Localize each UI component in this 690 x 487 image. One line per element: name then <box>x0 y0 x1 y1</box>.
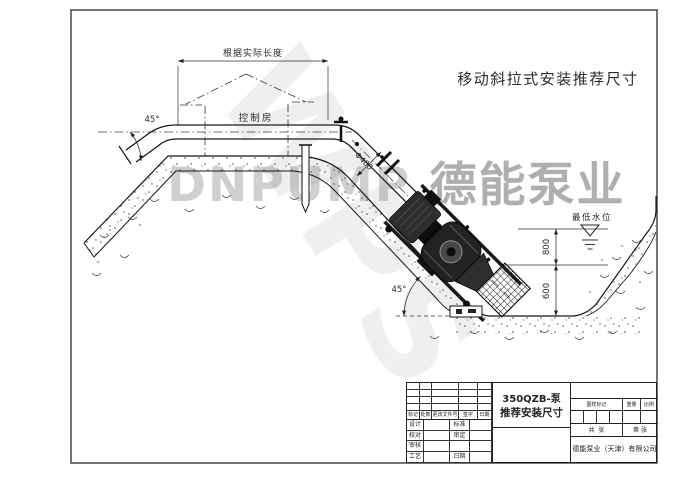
revision-cell <box>478 397 492 404</box>
title-block-right: 图样标记 重量 比例 共 张 第 张 德能泵业（天津）有限公司 <box>571 383 658 462</box>
revision-cell <box>432 390 459 397</box>
info-cell <box>597 411 610 423</box>
slope-angle-dimension: 45° <box>391 276 420 316</box>
signature-cell <box>424 431 450 442</box>
revision-empty-rows <box>407 383 492 411</box>
revision-cell <box>459 383 478 390</box>
info-cell <box>641 411 657 423</box>
revision-cell <box>459 390 478 397</box>
info-cell <box>584 411 597 423</box>
info-header-row: 图样标记 重量 比例 <box>571 399 658 411</box>
revision-cell <box>432 383 459 390</box>
slope-angle-label: 45° <box>391 285 406 295</box>
water-level-icon <box>581 225 599 249</box>
revision-col-header: 日期 <box>478 411 492 419</box>
dim-600-label: 600 <box>542 283 552 299</box>
signature-label: 工艺 <box>407 452 424 463</box>
ground-hatching <box>84 156 656 334</box>
info-empty-row <box>571 383 658 399</box>
revision-cell <box>420 383 432 390</box>
revision-cell <box>478 404 492 411</box>
revision-cell <box>478 383 492 390</box>
base-block <box>450 306 482 317</box>
revision-cell <box>407 397 420 404</box>
signature-label: 标准 <box>450 420 470 431</box>
signature-cell <box>470 441 492 452</box>
depth-dimensions: 800 600 <box>505 229 608 316</box>
signature-cell <box>470 452 492 463</box>
sheet-total: 共 张 <box>571 424 623 437</box>
anchor-stake <box>299 145 312 212</box>
signature-label <box>450 441 470 452</box>
info-cell <box>610 411 623 423</box>
sheet-count-row: 共 张 第 张 <box>571 424 658 437</box>
sheet-number: 第 张 <box>623 424 657 437</box>
info-cell <box>623 411 641 423</box>
revision-col-header: 签字 <box>459 411 478 419</box>
sheet-title: 移动斜拉式安装推荐尺寸 <box>457 70 639 88</box>
revision-cell <box>432 404 459 411</box>
control-room-label: 控制房 <box>239 112 274 124</box>
water-level-label: 最低水位 <box>572 212 612 223</box>
company-name: 德能泵业（天津）有限公司 <box>571 437 658 461</box>
signature-table: 设计 标准 校对 审定 审核 工艺 日期 <box>407 420 492 463</box>
info-col-header: 图样标记 <box>571 399 623 411</box>
length-note-label: 根据实际长度 <box>223 47 283 59</box>
signature-cell <box>424 452 450 463</box>
revision-cell <box>407 390 420 397</box>
revision-header-row: 标记 处数 更改文件号 签字 日期 <box>407 411 492 420</box>
info-value-row <box>571 411 658 424</box>
revision-cell <box>420 404 432 411</box>
revision-cell <box>459 397 478 404</box>
signature-cell <box>470 420 492 431</box>
info-cell <box>571 411 584 423</box>
signature-cell <box>424 441 450 452</box>
signature-label: 审核 <box>407 441 424 452</box>
ground-profile <box>84 156 656 316</box>
revision-cell <box>407 404 420 411</box>
title-block-center: 350QZB-泵 推荐安装尺寸 <box>493 383 571 462</box>
info-col-header: 比例 <box>641 399 657 411</box>
revision-col-header: 更改文件号 <box>432 411 459 419</box>
revision-cell <box>407 383 420 390</box>
signature-cell <box>424 420 450 431</box>
info-col-header: 重量 <box>623 399 641 411</box>
title-block: 标记 处数 更改文件号 签字 日期 设计 标准 校对 审定 审核 工艺 <box>406 382 657 463</box>
revision-cell <box>478 390 492 397</box>
signature-label: 日期 <box>450 452 470 463</box>
dim-800-label: 800 <box>542 239 552 255</box>
drawing-name: 推荐安装尺寸 <box>500 405 563 420</box>
signature-cell <box>470 431 492 442</box>
drawing-sheet: WPS DNPUMP 德能泵业 移动斜拉式安装推荐尺寸 <box>0 0 690 487</box>
product-model: 350QZB-泵 <box>502 390 560 405</box>
revision-cell <box>432 397 459 404</box>
signature-label: 校对 <box>407 431 424 442</box>
revision-table: 标记 处数 更改文件号 签字 日期 设计 标准 校对 审定 审核 工艺 <box>407 383 493 462</box>
bend-angle-dimension: 45° <box>130 115 160 161</box>
signature-label: 设计 <box>407 420 424 431</box>
signature-label: 审定 <box>450 431 470 442</box>
revision-cell <box>420 397 432 404</box>
bend-angle-label: 45° <box>144 115 159 125</box>
revision-col-header: 标记 <box>407 411 420 419</box>
revision-cell <box>420 390 432 397</box>
revision-cell <box>459 404 478 411</box>
revision-col-header: 处数 <box>420 411 432 419</box>
